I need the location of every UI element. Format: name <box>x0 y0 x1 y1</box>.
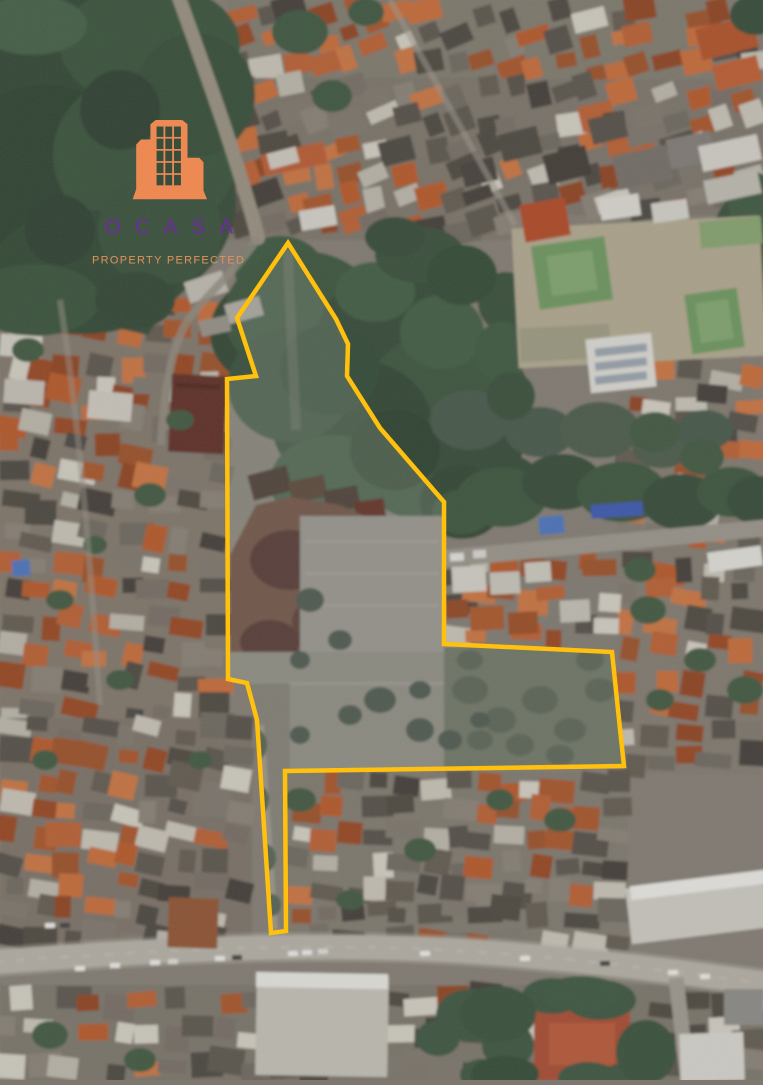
svg-text:PROPERTY PERFECTED: PROPERTY PERFECTED <box>92 255 245 267</box>
svg-text:OCASA: OCASA <box>105 216 247 239</box>
